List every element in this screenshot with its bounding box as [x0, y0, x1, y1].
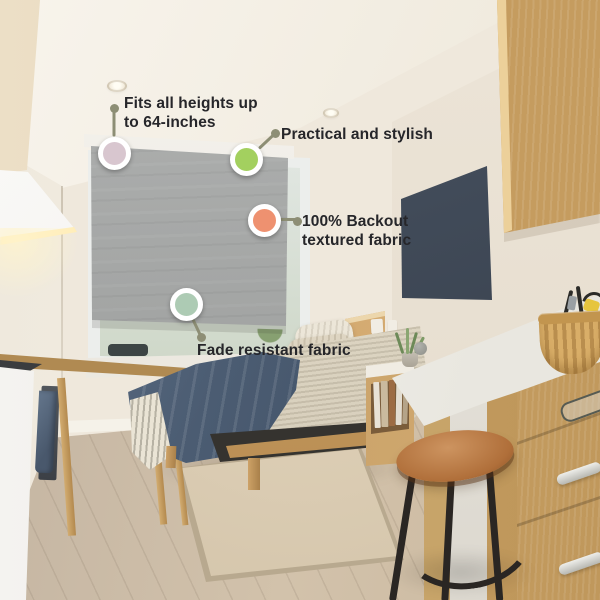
callout-height: Fits all heights up to 64-inches: [124, 94, 258, 132]
plant-pot: [402, 352, 418, 367]
bed-leg: [166, 446, 177, 468]
plant: [406, 328, 409, 354]
callout-blackout: 100% Backout textured fabric: [302, 212, 411, 250]
callout-stylish: Practical and stylish: [281, 125, 433, 144]
leader-dot: [293, 217, 302, 226]
feature-marker-blackout: [248, 204, 281, 237]
window-car: [108, 344, 148, 356]
wall-outlet: [371, 319, 384, 335]
leader-dot: [271, 129, 280, 138]
callout-fade: Fade resistant fabric: [197, 341, 351, 360]
callout-height-line2: to 64-inches: [124, 113, 258, 132]
leader-dot: [110, 104, 119, 113]
feature-marker-stylish: [230, 143, 263, 176]
backsplash-glow: [0, 228, 80, 298]
feature-marker-fade: [170, 288, 203, 321]
product-feature-image: Fits all heights up to 64-inches Practic…: [0, 0, 600, 600]
recessed-light: [323, 108, 339, 118]
callout-fade-line1: Fade resistant fabric: [197, 341, 351, 360]
callout-stylish-line1: Practical and stylish: [281, 125, 433, 144]
feature-marker-height: [98, 137, 131, 170]
book: [389, 380, 395, 426]
callout-blackout-line2: textured fabric: [302, 231, 411, 250]
book: [381, 381, 389, 427]
bed-leg: [248, 458, 260, 490]
callout-blackout-line1: 100% Backout: [302, 212, 411, 231]
recessed-light: [107, 80, 127, 92]
decor-ball: [414, 342, 427, 355]
callout-height-line1: Fits all heights up: [124, 94, 258, 113]
